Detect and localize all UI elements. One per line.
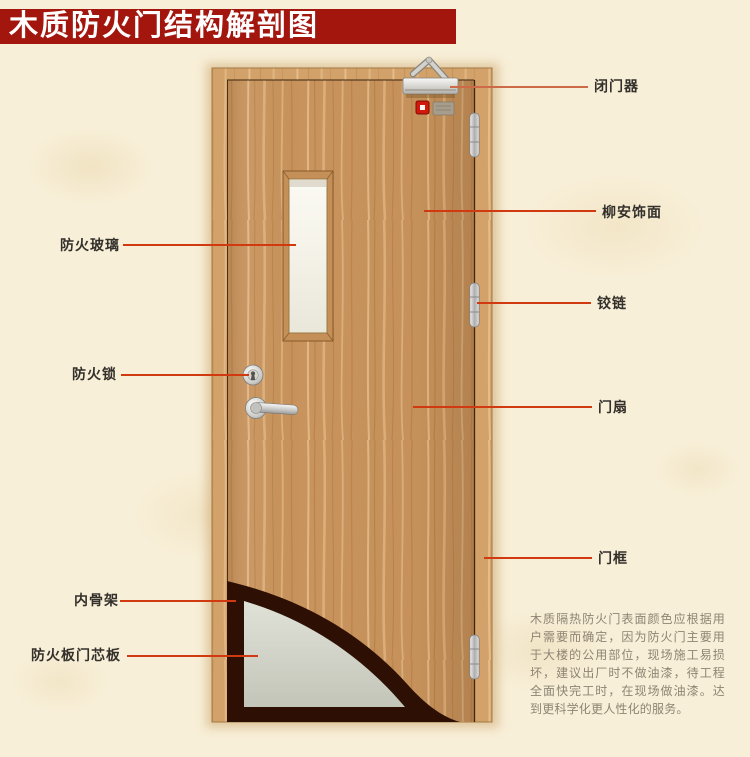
label-fire-lock: 防火锁	[72, 364, 117, 384]
hinge-top	[470, 113, 479, 157]
alarm-indicator	[416, 101, 429, 114]
description-note: 木质隔热防火门表面颜色应根据用户需要而确定，因为防火门主要用于大楼的公用部位，现…	[530, 610, 725, 718]
label-door-closer: 闭门器	[594, 76, 639, 96]
hinge-bottom	[470, 635, 479, 679]
label-door-leaf: 门扇	[598, 397, 628, 417]
hinge-middle	[470, 283, 479, 327]
mount-plate	[433, 102, 454, 115]
label-hinge: 铰链	[597, 293, 627, 313]
label-inner-skeleton: 内骨架	[74, 590, 119, 610]
diagram-canvas: 木质防火门结构解剖图	[0, 0, 750, 757]
label-core-panel: 防火板门芯板	[31, 645, 121, 665]
label-fire-glass: 防火玻璃	[60, 235, 120, 255]
label-veneer: 柳安饰面	[602, 202, 662, 222]
fire-glass-window	[283, 171, 333, 341]
label-door-frame: 门框	[598, 548, 628, 568]
